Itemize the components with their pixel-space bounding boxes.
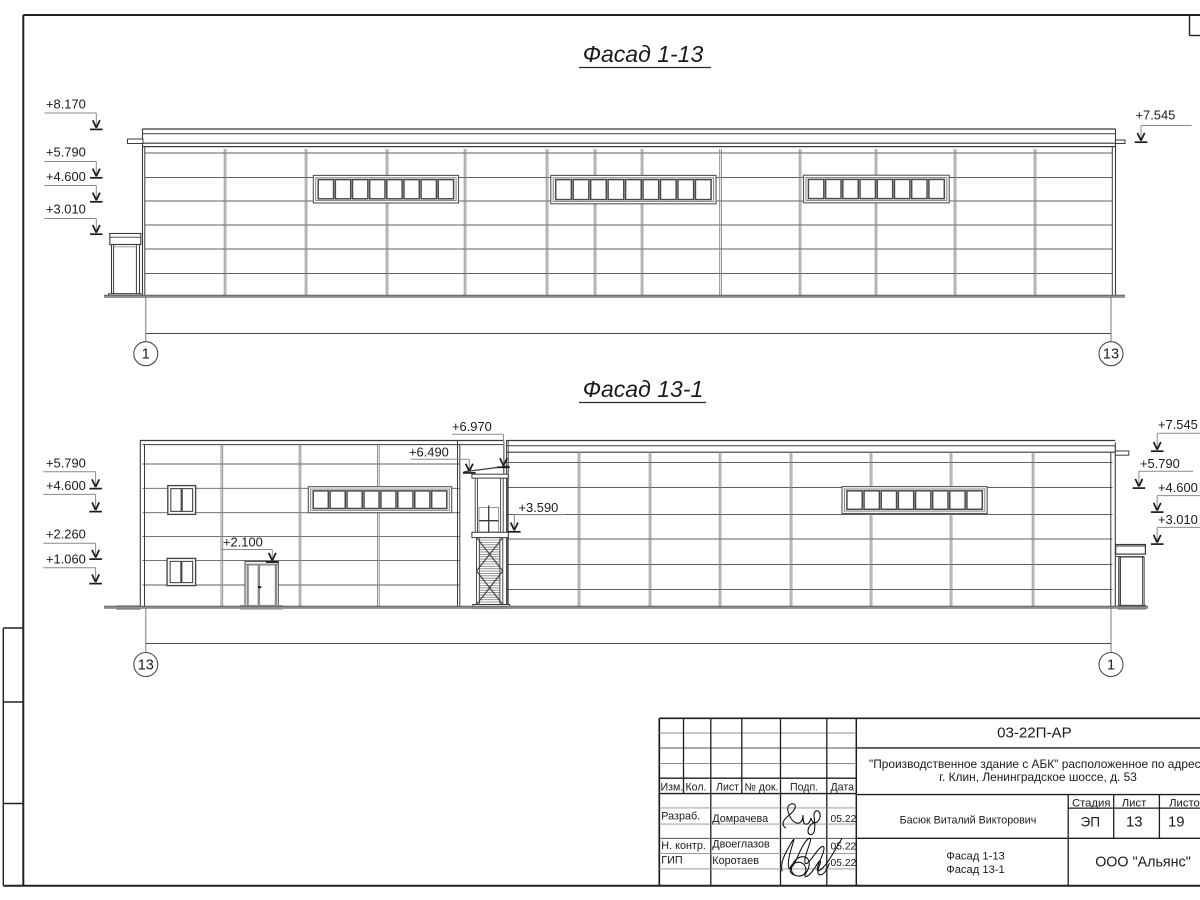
svg-text:Лист: Лист — [716, 782, 739, 794]
svg-text:+5.790: +5.790 — [46, 455, 86, 470]
svg-text:Разраб.: Разраб. — [661, 811, 700, 823]
svg-text:Подп.: Подп. — [790, 782, 818, 794]
svg-text:Фасад 13-1: Фасад 13-1 — [583, 376, 704, 402]
svg-text:Домрачева: Домрачева — [712, 813, 768, 825]
svg-text:№ док.: № док. — [745, 782, 779, 794]
svg-text:Фасад 13-1: Фасад 13-1 — [946, 864, 1005, 876]
svg-text:Двоеглазов: Двоеглазов — [712, 839, 770, 851]
svg-text:+1.060: +1.060 — [46, 551, 86, 566]
svg-text:05.22: 05.22 — [831, 814, 857, 825]
svg-text:+4.600: +4.600 — [46, 478, 86, 493]
svg-text:+4.600: +4.600 — [46, 169, 86, 184]
svg-text:1: 1 — [142, 347, 150, 363]
svg-text:Коротаев: Коротаев — [712, 855, 759, 867]
svg-text:+3.010: +3.010 — [46, 201, 86, 216]
svg-text:"Производственное здание с АБК: "Производственное здание с АБК" располож… — [869, 757, 1200, 771]
svg-text:+7.545: +7.545 — [1158, 417, 1198, 432]
svg-text:+8.170: +8.170 — [46, 97, 86, 112]
svg-text:+5.790: +5.790 — [1140, 456, 1180, 471]
svg-text:05.22: 05.22 — [831, 858, 857, 869]
svg-text:Н. контр.: Н. контр. — [661, 840, 706, 852]
svg-text:Листов: Листов — [1169, 798, 1200, 810]
svg-text:19: 19 — [1168, 814, 1185, 830]
svg-text:ЭП: ЭП — [1081, 814, 1101, 829]
svg-text:03-22П-АР: 03-22П-АР — [997, 724, 1072, 741]
svg-text:13: 13 — [1126, 814, 1143, 830]
svg-text:13: 13 — [1103, 347, 1119, 363]
svg-text:13: 13 — [138, 658, 154, 674]
svg-text:Басюк Виталий Викторович: Басюк Виталий Викторович — [900, 815, 1037, 827]
svg-text:Фасад 1-13: Фасад 1-13 — [946, 851, 1005, 863]
svg-text:Дата: Дата — [831, 782, 855, 794]
svg-text:+5.790: +5.790 — [46, 145, 86, 160]
svg-text:1: 1 — [1107, 658, 1115, 674]
svg-text:г. Клин, Ленинградское шоссе,: г. Клин, Ленинградское шоссе, д. 53 — [939, 770, 1137, 784]
svg-text:Стадия: Стадия — [1072, 798, 1111, 810]
svg-text:ГИП: ГИП — [661, 855, 682, 867]
svg-text:Изм.: Изм. — [661, 782, 684, 794]
svg-text:+7.545: +7.545 — [1136, 108, 1176, 123]
svg-text:+2.260: +2.260 — [46, 526, 86, 541]
svg-text:+6.490: +6.490 — [409, 444, 449, 459]
svg-text:Фасад 1-13: Фасад 1-13 — [583, 41, 704, 67]
svg-text:Кол.: Кол. — [686, 782, 707, 794]
svg-text:+3.590: +3.590 — [519, 500, 559, 515]
svg-text:Лист: Лист — [1122, 798, 1147, 810]
svg-text:ООО "Альянс": ООО "Альянс" — [1095, 855, 1191, 871]
svg-text:+6.970: +6.970 — [452, 419, 492, 434]
svg-text:+2.100: +2.100 — [223, 535, 263, 550]
svg-text:+4.600: +4.600 — [1158, 480, 1198, 495]
svg-text:+3.010: +3.010 — [1158, 512, 1198, 527]
